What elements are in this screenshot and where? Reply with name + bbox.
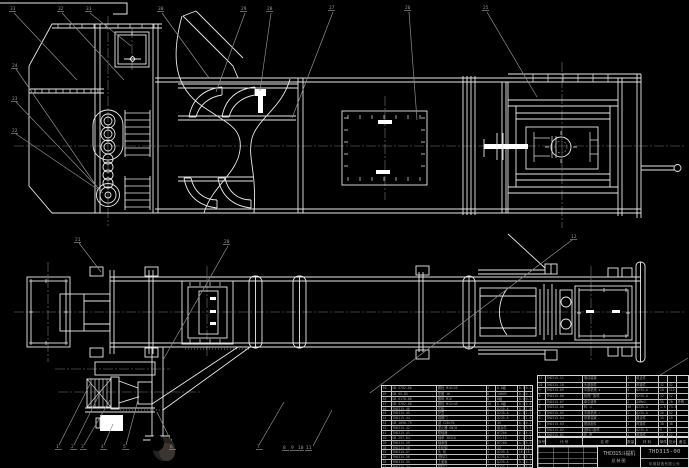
bom-row: 37THD315-37头 轮1Q235-A18.218.2 (382, 449, 532, 454)
drawing-subtitle: 总装图 (612, 458, 627, 464)
callout-label: 23 (12, 96, 18, 102)
bom-row: 3THD315-03尾部部件1焊接件3838 (538, 421, 688, 427)
bom-header-row: 序号 代 号 名 称 数量 材 料 单件 总计 备注 (537, 437, 689, 446)
callout-label: 25 (483, 5, 489, 11)
bom-col-material: 材 料 (636, 438, 660, 445)
drawing-title-cell: THD315斗提机 总装图 (598, 447, 641, 467)
callout-label: 2 (71, 444, 74, 450)
bom-col-qty: 数量 (627, 438, 636, 445)
bom-col-code: 代 号 (546, 438, 583, 445)
bom-row: 9THD315-09中部机壳 Ⅱ4Q235-A28112 (538, 387, 688, 393)
bom-row: 50GB 5782-86螺栓 M16×5548.8级0.10.4 (382, 386, 532, 391)
callout-label: 31 (86, 6, 92, 12)
bom-row: 44THD315-44观察门1Q235-A1.81.8 (382, 415, 532, 420)
callout-label: 27 (329, 5, 335, 11)
bom-col-unit-weight: 单件 (659, 438, 668, 445)
bom-row: 10THD315-10头部部件1焊接件4242 (538, 382, 688, 388)
bom-row: 39THD315-39轴承座2HT2004.59.0 (382, 440, 532, 445)
bom-col-total-weight: 总计 (668, 438, 677, 445)
bom-row: 47GB 5782-86螺栓 M12×45168.8级0.050.8 (382, 401, 532, 406)
callout-label: 21 (75, 237, 81, 243)
bom-col-remark: 备注 (677, 438, 688, 445)
callout-label: 29 (241, 6, 247, 12)
bom-row: 42THD315-42逆止器 GN701组合件3.53.5 (382, 425, 532, 430)
bom-row: 11THD315-11驱动装置1组合件 (538, 376, 688, 382)
callout-label: 12 (571, 234, 577, 240)
callout-label: 32 (58, 6, 64, 12)
callout-label: 30 (158, 6, 164, 12)
bom-row: 45THD315-45护罩1Q235-A2.52.5 (382, 410, 532, 415)
bom-row: 49GB 95-85垫圈 168100HV0.010.1 (382, 391, 532, 396)
drawing-number-cell: THD315-00 机械制造有限公司 (641, 447, 688, 467)
cad-drawing-viewport: 3332313029282726252423222120123456789101… (0, 0, 689, 468)
bom-row: 38THD315-38头轮轴14512.612.6 (382, 445, 532, 450)
callout-label: 26 (405, 5, 411, 11)
callout-label: 20 (224, 239, 230, 245)
bom-row: 6THD315-06料 斗46Q235-A1.673.6 (538, 404, 688, 410)
bom-row: 4THD315-04张紧装置1组合件1515 (538, 415, 688, 421)
bom-row: 2THD315-02进料口部件1Q235-A99 (538, 427, 688, 433)
callout-label: 10 (298, 445, 304, 451)
callout-label: 33 (10, 6, 16, 12)
bom-row: 40GB 297-84轴承 303102GCr151.22.4 (382, 435, 532, 440)
bom-row: 36THD315-36进料口1Q235-A5.45.4 (382, 454, 532, 459)
callout-label: 4 (101, 444, 104, 450)
callout-label: 8 (283, 445, 286, 451)
bom-row: 34THD315-34卸料口1Q235-A4.64.6 (382, 464, 532, 468)
callout-label: 7 (257, 444, 260, 450)
bom-col-index: 序号 (538, 438, 546, 445)
bom-row: 48GB 6170-86螺母 M1688级0.030.2 (382, 396, 532, 401)
callout-label: 9 (291, 445, 294, 451)
bom-row: 5THD315-05中部机壳 Ⅰ2Q235-A2652 (538, 410, 688, 416)
callout-label: 28 (267, 6, 273, 12)
bom-row: 7THD315-07牵引链条220Mn23570外购 (538, 399, 688, 405)
title-block: THD315斗提机 总装图 THD315-00 机械制造有限公司 (537, 446, 689, 468)
bom-table-right: 11THD315-11驱动装置1组合件10THD315-10头部部件1焊接件42… (537, 375, 689, 437)
callout-label: 22 (12, 128, 18, 134)
bom-row: 46THD315-46压板2Q235-A0.51.0 (382, 406, 532, 411)
bom-row: 35THD315-35上盖板1Q235-A3.23.2 (382, 459, 532, 464)
callout-label: 6 (170, 444, 173, 450)
drawing-number: THD315-00 (648, 447, 680, 458)
callout-label: 3 (81, 444, 84, 450)
callout-label: 1 (56, 444, 59, 450)
revision-grid (538, 447, 598, 467)
bom-row: 8THD315-08检视门部件1Q235-A1212 (538, 393, 688, 399)
company-name: 机械制造有限公司 (641, 458, 688, 467)
callout-label: 11 (306, 445, 312, 451)
bom-row: 41THD315-41联轴器1HT2006.06.0 (382, 430, 532, 435)
bom-col-name: 名 称 (583, 438, 626, 445)
callout-label: 24 (12, 63, 18, 69)
bom-row: 43GB 1096-79键 C20×701450.20.2 (382, 420, 532, 425)
callout-label: 5 (123, 444, 126, 450)
drawing-title: THD315斗提机 (603, 450, 635, 457)
bom-table-left: 50GB 5782-86螺栓 M16×5548.8级0.10.449GB 95-… (381, 385, 533, 468)
